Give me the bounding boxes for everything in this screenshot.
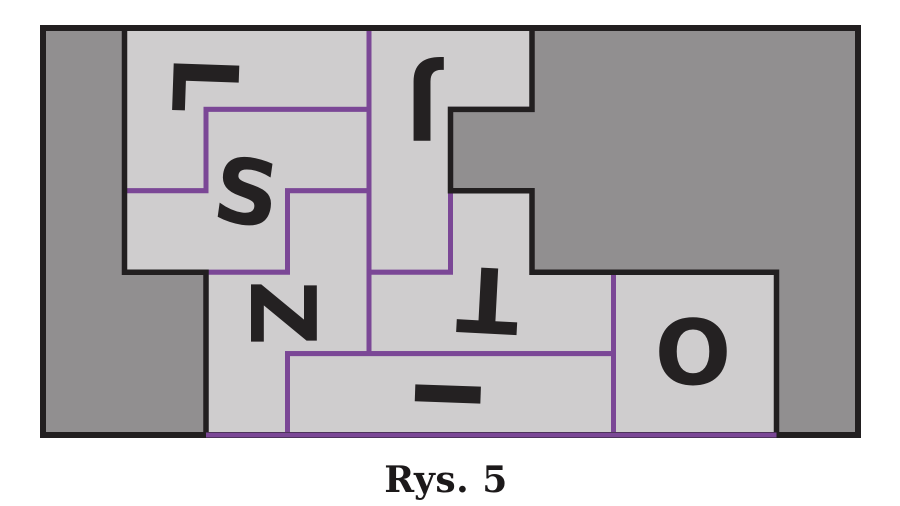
piece-letter-o: O (655, 301, 732, 406)
figure-caption: Rys. 5 (0, 459, 892, 501)
figure: LJSZTIO Rys. 5 (0, 0, 900, 506)
piece-letter-l: L (150, 54, 257, 115)
puzzle-svg: LJSZTIO (0, 0, 900, 506)
piece-letter-t: T (455, 244, 522, 352)
piece-letter-i: I (392, 375, 498, 412)
piece-letter-z: Z (229, 280, 334, 345)
piece-letter-j: J (405, 53, 445, 158)
